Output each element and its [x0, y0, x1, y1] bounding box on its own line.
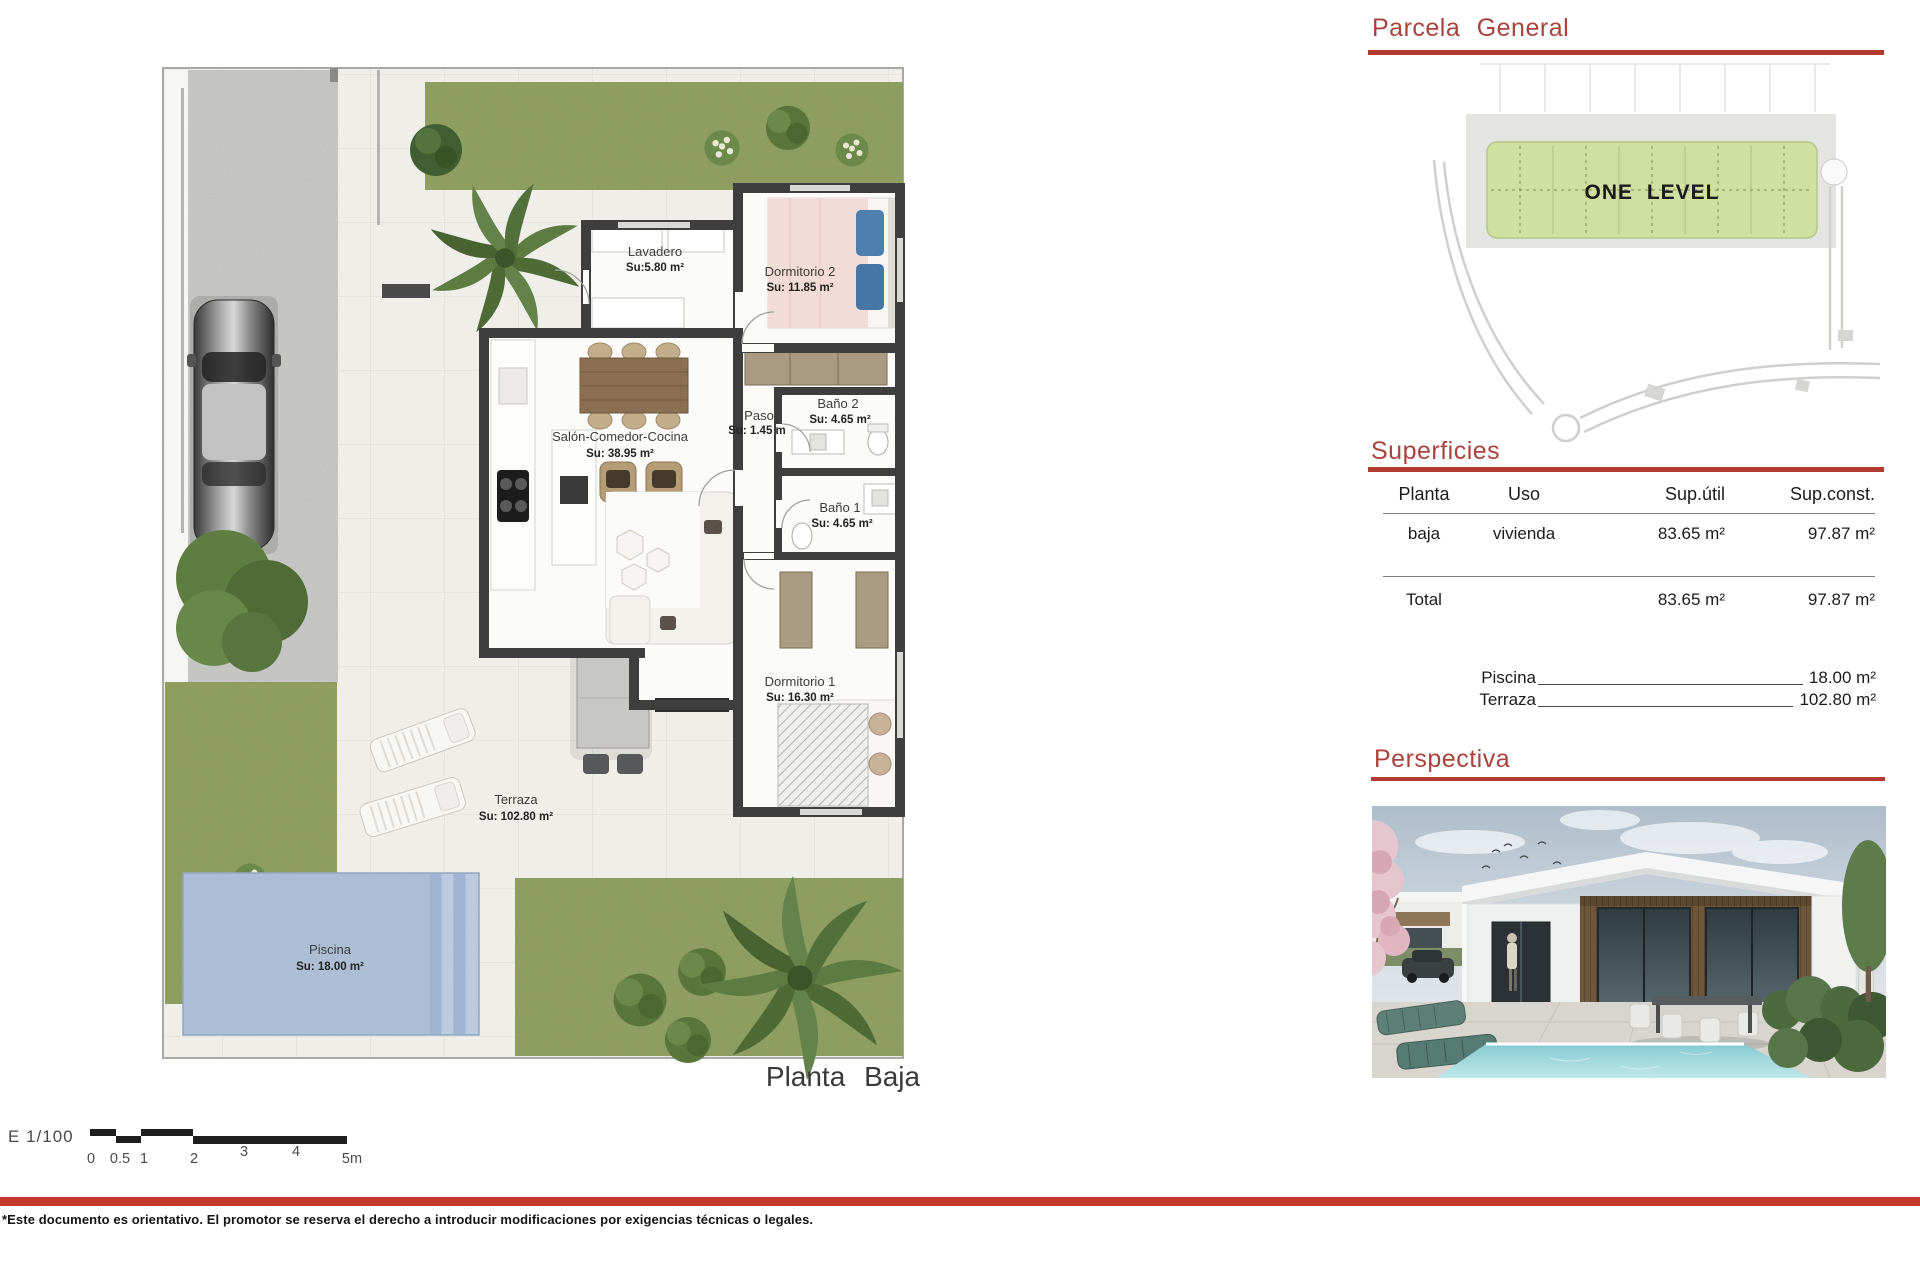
- surfaces-header: Planta Uso Sup.útil Sup.const.: [1383, 484, 1875, 514]
- col-planta: Planta: [1383, 484, 1465, 505]
- extra-fill-line: [1538, 706, 1793, 707]
- car: [187, 296, 281, 554]
- room-label-dormitorio2: Dormitorio 2: [765, 264, 836, 279]
- room-label-dormitorio1: Dormitorio 1: [765, 674, 836, 689]
- room-area-bano1: Su: 4.65 m²: [811, 518, 873, 530]
- site-circle: [1821, 159, 1847, 185]
- extra-value-piscina: 18.00 m²: [1809, 668, 1876, 688]
- room-label-piscina: Piscina: [309, 942, 352, 957]
- room-label-salon: Salón-Comedor-Cocina: [552, 429, 689, 444]
- room-area-dormitorio1: Su: 16.30 m²: [766, 692, 834, 704]
- room-area-lavadero: Su:5.80 m²: [626, 262, 684, 274]
- room-area-dormitorio2: Su: 11.85 m²: [766, 282, 833, 294]
- cell-planta: baja: [1383, 524, 1465, 544]
- cell-sup-const: 97.87 m²: [1725, 524, 1875, 544]
- superficies-heading: Superficies: [1371, 437, 1500, 466]
- col-sup-util: Sup.útil: [1583, 484, 1725, 505]
- footer-bar: [0, 1197, 1920, 1206]
- scale-tick-3: 3: [240, 1144, 248, 1160]
- one-level-label: ONE LEVEL: [1584, 181, 1719, 204]
- garden-top: [410, 82, 903, 190]
- total-sup-const: 97.87 m²: [1725, 590, 1875, 610]
- footer-disclaimer: *Este documento es orientativo. El promo…: [2, 1212, 813, 1227]
- total-sup-util: 83.65 m²: [1583, 590, 1725, 610]
- floor-title: Planta Baja: [766, 1061, 921, 1092]
- col-uso: Uso: [1465, 484, 1583, 505]
- room-label-paso: Paso: [744, 408, 774, 423]
- parcel-grid: [1480, 64, 1830, 112]
- extra-label-piscina: Piscina: [1458, 668, 1536, 688]
- wardrobe-2: [856, 572, 888, 648]
- scale-bar: E 1/100 0 0.5 1 2 3 4 5m: [8, 1127, 362, 1167]
- extra-row-piscina: Piscina 18.00 m²: [1458, 666, 1876, 688]
- site-plan: ONE LEVEL: [1434, 64, 1880, 441]
- col-sup-const: Sup.const.: [1725, 484, 1875, 505]
- site-structures: [1644, 330, 1853, 401]
- brochure-page: Lavadero Su:5.80 m² Dormitorio 2 Su: 11.…: [0, 0, 1920, 1280]
- room-area-terraza: Su: 102.80 m²: [479, 811, 553, 823]
- total-label: Total: [1383, 590, 1465, 610]
- scale-tick-4: 4: [292, 1144, 300, 1160]
- scale-tick-1: 1: [140, 1151, 148, 1167]
- drawing-layer: Lavadero Su:5.80 m² Dormitorio 2 Su: 11.…: [0, 0, 1920, 1280]
- cell-sup-util: 83.65 m²: [1583, 524, 1725, 544]
- extra-row-terraza: Terraza 102.80 m²: [1458, 688, 1876, 710]
- extra-value-terraza: 102.80 m²: [1799, 690, 1876, 710]
- perspectiva-heading: Perspectiva: [1374, 745, 1510, 774]
- wardrobe-dormitorio2: [745, 352, 887, 385]
- superficies-rule: [1368, 467, 1884, 472]
- bed-dormitorio2: [768, 198, 896, 328]
- floor-plan: Lavadero Su:5.80 m² Dormitorio 2 Su: 11.…: [8, 68, 923, 1167]
- perspectiva-rule: [1371, 777, 1885, 781]
- surfaces-extras: Piscina 18.00 m² Terraza 102.80 m²: [1458, 666, 1876, 710]
- scale-tick-5m: 5m: [342, 1151, 362, 1167]
- bed-dormitorio1: [778, 700, 896, 808]
- parcela-rule: [1368, 50, 1884, 55]
- scale-tick-05: 0.5: [110, 1151, 130, 1167]
- scale-tick-2: 2: [190, 1151, 198, 1167]
- extra-fill-line: [1538, 684, 1803, 685]
- surfaces-divider: [1383, 576, 1875, 577]
- perspective-photo: [1346, 806, 1896, 1078]
- dining-table: [580, 343, 688, 429]
- cell-uso: vivienda: [1465, 524, 1583, 544]
- room-label-terraza: Terraza: [494, 792, 538, 807]
- room-area-paso: Su: 1.45 m: [728, 425, 786, 437]
- scale-label: E 1/100: [8, 1127, 74, 1146]
- parcela-general-heading: Parcela General: [1372, 14, 1569, 43]
- wardrobe-1: [780, 572, 812, 648]
- extra-label-terraza: Terraza: [1458, 690, 1536, 710]
- room-label-lavadero: Lavadero: [628, 244, 682, 259]
- room-area-piscina: Su: 18.00 m²: [296, 961, 364, 973]
- room-area-bano2: Su: 4.65 m²: [809, 414, 871, 426]
- room-label-bano2: Baño 2: [817, 396, 858, 411]
- one-level-block: ONE LEVEL: [1487, 142, 1817, 238]
- surfaces-total-row: Total 83.65 m² 97.87 m²: [1383, 590, 1875, 610]
- room-label-bano1: Baño 1: [819, 500, 860, 515]
- surfaces-row: baja vivienda 83.65 m² 97.87 m²: [1383, 524, 1875, 544]
- scale-tick-0: 0: [87, 1151, 95, 1167]
- room-area-salon: Su: 38.95 m²: [586, 448, 654, 460]
